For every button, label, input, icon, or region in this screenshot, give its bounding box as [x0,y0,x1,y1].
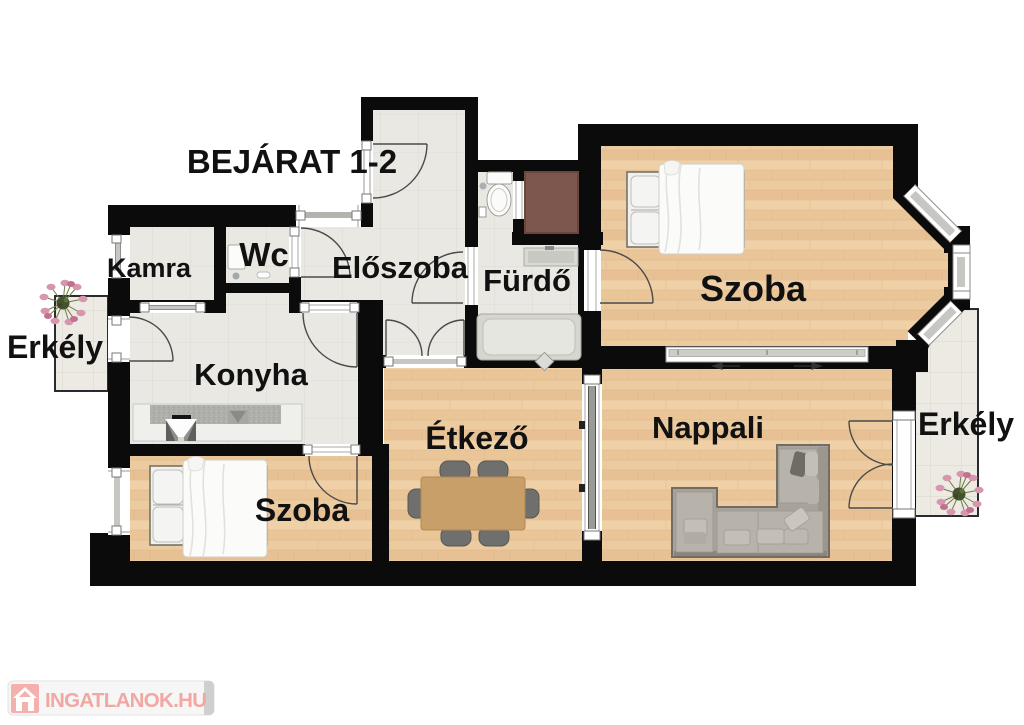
svg-text:Konyha: Konyha [194,357,308,392]
svg-text:Fürdő: Fürdő [483,263,571,298]
svg-text:Erkély: Erkély [7,329,103,365]
svg-text:Étkező: Étkező [425,420,528,456]
svg-text:Wc: Wc [239,236,289,273]
svg-text:INGATLANOK.HU: INGATLANOK.HU [45,689,206,712]
svg-text:BEJÁRAT 1-2: BEJÁRAT 1-2 [187,143,397,180]
svg-text:Nappali: Nappali [652,410,764,445]
svg-text:Kamra: Kamra [107,253,192,283]
svg-text:Szoba: Szoba [700,268,807,309]
svg-text:Előszoba: Előszoba [332,250,469,285]
svg-text:Szoba: Szoba [255,492,349,528]
svg-text:Erkély: Erkély [918,406,1014,442]
